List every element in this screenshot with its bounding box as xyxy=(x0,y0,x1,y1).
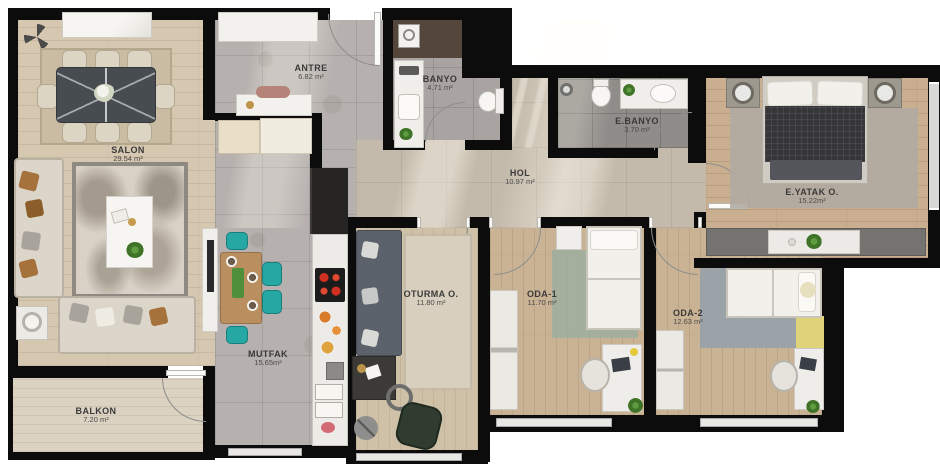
fruit-plate xyxy=(320,340,335,355)
room-area: 15.65m² xyxy=(248,359,288,368)
wall-oda2-right xyxy=(822,268,844,432)
coffee-machine xyxy=(326,362,344,380)
room-area: 29.54 m² xyxy=(111,155,145,164)
wall-balkon-bottom xyxy=(8,452,215,460)
pillow xyxy=(148,306,168,326)
room-label-oda1: ODA-1 11.70 m² xyxy=(527,289,557,308)
oda2-window xyxy=(700,418,818,427)
room-label-hol: HOL 10.97 m² xyxy=(505,168,535,187)
oda2-wardrobe xyxy=(656,330,684,410)
room-label-antre: ANTRE 6.82 m² xyxy=(295,63,328,82)
dining-chair-teal xyxy=(226,232,248,250)
entry-closet xyxy=(218,12,318,42)
room-label-balkon: BALKON 7.20 m² xyxy=(76,406,117,425)
plate xyxy=(247,300,258,311)
hol-jamb-5 xyxy=(649,217,653,228)
ceiling-fan xyxy=(24,24,50,50)
hol-jamb-3 xyxy=(489,217,493,228)
wall-oda1-oda2 xyxy=(644,228,656,415)
room-label-eyatak: E.YATAK O. 15.22m² xyxy=(785,187,838,206)
oturma-rug xyxy=(404,234,472,390)
fruit-plate xyxy=(331,325,342,336)
room-label-salon: SALON 29.54 m² xyxy=(111,145,145,164)
dining-chair-teal xyxy=(262,262,282,286)
vanity-mirror xyxy=(732,82,754,104)
dining-chair xyxy=(95,122,120,143)
wall-banyo-bottom-r xyxy=(465,140,512,150)
pillow xyxy=(361,329,380,348)
wall-hol-1 xyxy=(346,217,420,228)
coffee-table xyxy=(106,196,153,268)
dining-chair xyxy=(127,122,152,143)
arc-lamp-base xyxy=(354,416,378,440)
oda1-wardrobe xyxy=(490,290,518,410)
oda2-laptop xyxy=(799,357,817,372)
shoe-cabinet xyxy=(218,120,260,154)
room-area: 3.70 m² xyxy=(615,126,659,135)
kitchen-sink xyxy=(315,384,343,400)
dresser-plant xyxy=(806,234,822,249)
oda1-nightstand xyxy=(556,226,582,250)
oda1-window xyxy=(496,418,612,427)
dining-chair-teal xyxy=(262,290,282,314)
room-area: 12.63 m² xyxy=(673,318,703,327)
oda2-plant xyxy=(806,400,820,413)
wall-salon-balkon xyxy=(8,366,168,378)
wall-ebanyo-bottom xyxy=(548,148,658,158)
toilet-tank xyxy=(495,88,504,114)
faucet-set xyxy=(399,66,419,75)
master-pillow xyxy=(817,80,864,107)
gold-bowl xyxy=(246,101,254,109)
hol-jamb-6 xyxy=(698,217,702,228)
wall-master-bottom xyxy=(694,258,940,268)
kitchen-tall-cabinet xyxy=(310,168,348,234)
ebanyo-toilet-tank xyxy=(593,79,609,87)
banyo-plant xyxy=(399,128,413,140)
salon-console xyxy=(62,12,152,38)
hall-cabinet xyxy=(260,118,312,154)
gold-dish xyxy=(128,218,136,226)
stove xyxy=(315,268,345,302)
room-area: 15.22m² xyxy=(785,197,838,206)
plate xyxy=(247,272,258,283)
room-area: 4.71 m² xyxy=(423,84,458,93)
ebanyo-sink xyxy=(650,84,676,103)
washer-door-icon xyxy=(403,29,415,41)
room-area: 10.97 m² xyxy=(505,178,535,187)
ebanyo-plant xyxy=(623,84,635,96)
pillow xyxy=(68,302,89,323)
pink-kettle xyxy=(321,422,335,433)
flower-bouquet xyxy=(94,84,116,102)
gold-decor xyxy=(357,364,366,373)
oda1-pillow xyxy=(590,230,638,250)
fruit-plate xyxy=(318,310,332,324)
bed-throw xyxy=(770,160,862,180)
herb-tray xyxy=(232,268,244,298)
dining-chair xyxy=(37,84,58,109)
master-pillow xyxy=(767,80,814,107)
plate xyxy=(226,256,237,267)
vanity-mirror xyxy=(874,82,896,104)
oda1-desk-chair xyxy=(580,358,610,392)
room-area: 11.80 m² xyxy=(404,299,459,308)
hol-jamb-1 xyxy=(417,217,421,228)
wall-balkon-left xyxy=(8,378,13,458)
balkon-door-panel xyxy=(166,370,206,376)
oturma-window xyxy=(356,453,462,461)
wall-salon-antre xyxy=(203,8,215,120)
dining-chair xyxy=(62,122,87,143)
room-label-mutfak: MUTFAK 15.65m² xyxy=(248,349,288,368)
pillow xyxy=(361,241,380,260)
floor-plan: SALON 29.54 m² ANTRE 6.82 m² BANYO 4.71 … xyxy=(0,0,940,468)
room-area: 11.70 m² xyxy=(527,299,557,308)
side-table-lamp xyxy=(22,312,42,332)
wall-antre-banyo xyxy=(383,8,393,150)
oda2-yellow-mat xyxy=(796,316,824,348)
table-plant xyxy=(126,242,144,258)
ebanyo-toilet xyxy=(591,84,611,107)
pillow xyxy=(21,231,41,251)
master-duvet xyxy=(765,106,865,162)
oda2-desk-chair xyxy=(770,360,798,392)
hol-jamb-2 xyxy=(466,217,470,228)
wall-ebanyo-left xyxy=(548,78,558,148)
mutfak-window xyxy=(228,448,302,456)
room-area: 6.82 m² xyxy=(295,73,328,82)
pillow xyxy=(361,287,379,305)
shower-head-icon xyxy=(560,83,573,96)
hol-passage-floor xyxy=(512,78,548,148)
yellow-accent xyxy=(630,348,638,356)
pillow xyxy=(95,307,115,327)
pillow xyxy=(25,199,45,219)
wall-master-jamb xyxy=(694,148,706,163)
room-label-oturma: OTURMA O. 11.80 m² xyxy=(404,289,459,308)
banyo-sink xyxy=(398,94,420,120)
room-label-banyo: BANYO 4.71 m² xyxy=(423,74,458,93)
oda1-plant xyxy=(628,398,643,413)
hol-jamb-4 xyxy=(537,217,541,228)
pillow xyxy=(123,305,144,326)
oda1-laptop xyxy=(611,357,631,372)
room-label-oda2: ODA-2 12.63 m² xyxy=(673,308,703,327)
room-label-ebanyo: E.BANYO 3.70 m² xyxy=(615,116,659,135)
dining-chair xyxy=(154,84,175,109)
oda2-wall-circle xyxy=(800,282,816,298)
dining-chair-teal xyxy=(226,326,248,344)
dresser-dish xyxy=(788,238,796,246)
kitchen-sink xyxy=(315,402,343,418)
room-area: 7.20 m² xyxy=(76,416,117,425)
console-decor xyxy=(256,86,290,98)
tv xyxy=(207,240,214,292)
master-window xyxy=(929,82,939,210)
